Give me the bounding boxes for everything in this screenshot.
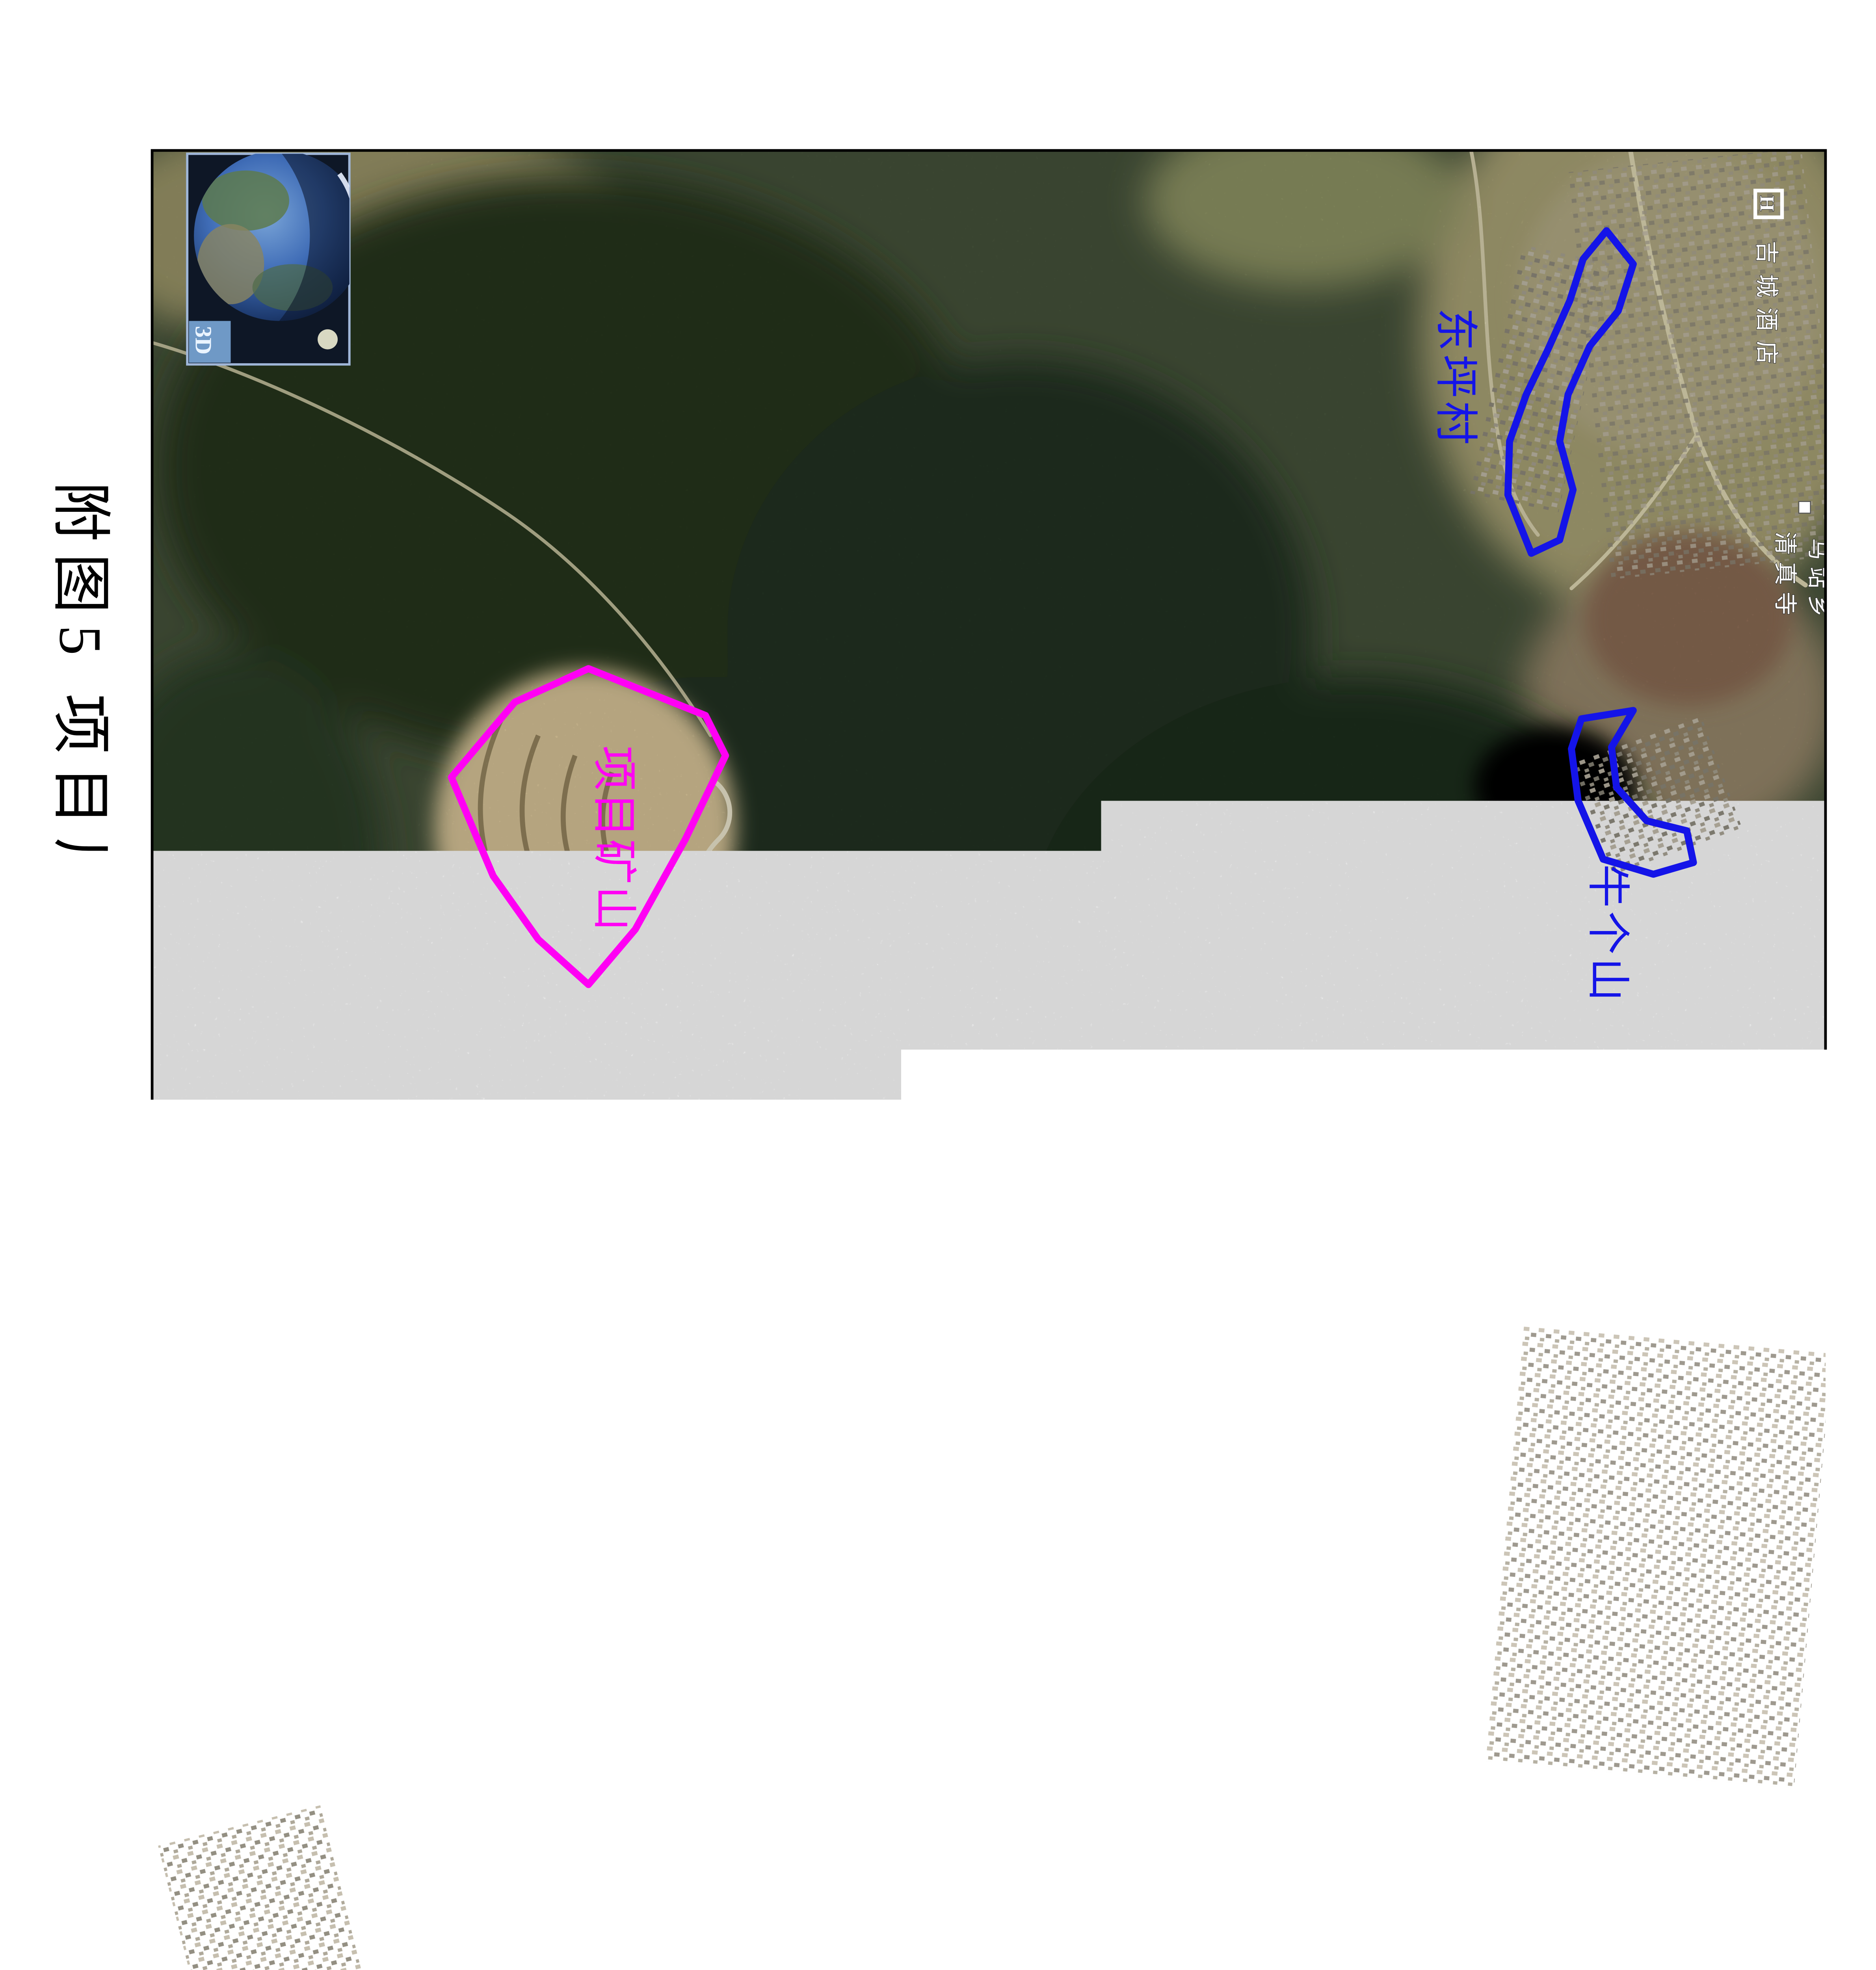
label-retrofit: 技改项目 <box>992 1456 1040 1636</box>
label-production: 生产区 <box>832 1222 884 1427</box>
poi-dalishu-mosque-line1: 大梨树 <box>1635 1665 1661 1755</box>
scale-tick-0: 0 <box>101 1839 138 1855</box>
label-dongping: 东坪村 <box>1432 308 1480 448</box>
poi-mosque-label: 清真寺 <box>1772 532 1798 622</box>
poi-dalishu-label: 大梨树 <box>1723 1401 1751 1506</box>
poi-hotel-label: 吉城酒店 <box>1753 241 1779 374</box>
logo-3d-badge: 3D <box>190 326 216 355</box>
s237-text: S237 <box>1131 1458 1150 1502</box>
label-dalishu: 大梨树 <box>1647 1486 1695 1617</box>
satellite-map: H 吉城酒店 清真寺 马站乡 大梨树 大梨树 清真寺 小寨 S237 S237 … <box>58 50 1876 1970</box>
s237-shield-upper: S237 <box>1130 1453 1153 1502</box>
mosque-icon <box>1799 502 1811 513</box>
figure-canvas: H 吉城酒店 清真寺 马站乡 大梨树 大梨树 清真寺 小寨 S237 S237 … <box>0 0 1876 1970</box>
scale-bar-label: 比例尺: <box>59 1663 99 1797</box>
poi-xiaozhai-label: 小寨 <box>340 1765 364 1822</box>
label-xiaozhai: 小寨 <box>313 1889 361 1970</box>
hotel-icon: H <box>1755 195 1777 211</box>
label-waste-plant-line1: 腾冲市生活垃圾综合处 <box>912 1515 960 1970</box>
grain-overlay <box>152 151 1826 1970</box>
figure-title: 附图5 项目周边关系图 <box>47 481 113 1197</box>
label-company-line2: 责任公司 <box>1161 1376 1209 1560</box>
scale-bar-black-segment <box>57 1851 95 1970</box>
label-waste-plant-line2: 置发电项目 <box>858 1518 906 1760</box>
google-earth-logo: 3D <box>187 151 364 364</box>
label-mine: 项目矿山 <box>589 745 639 933</box>
label-niugeshan: 牛个山 <box>1584 864 1632 1004</box>
label-living: 项目生活区 <box>675 1491 725 1733</box>
label-company-line1: 腾冲市金岭石业有限 <box>1224 1371 1272 1784</box>
poi-dalishu-mosque-line2: 清真寺 <box>1605 1670 1631 1760</box>
